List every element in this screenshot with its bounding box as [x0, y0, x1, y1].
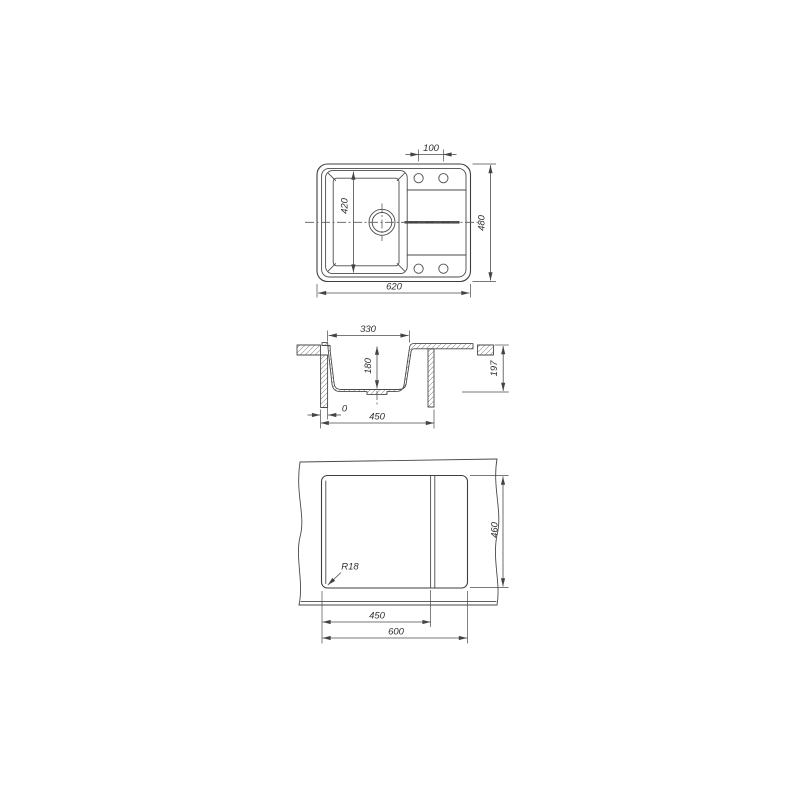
dim-label-corner-radius: R18 [341, 562, 359, 573]
dim-overall-width: 620 [317, 281, 471, 297]
dim-label-zero-offset: 0 [342, 404, 348, 415]
sink-technical-drawing: 100 420 480 620 330 [0, 0, 800, 800]
dim-label-bowl-depth: 180 [363, 357, 374, 374]
bowl-chamfer-bl [328, 264, 335, 271]
dim-label-inner-width: 450 [369, 610, 386, 621]
cabinet-wall-right [428, 349, 434, 407]
dim-bowl-top-width: 330 [328, 324, 410, 343]
bowl-chamfer-br [397, 264, 404, 271]
dim-zero-offset: 0 [308, 404, 348, 420]
break-line-left [298, 462, 301, 605]
dim-label-total-height: 197 [489, 360, 500, 377]
dim-cutout-width: 600 [323, 591, 468, 644]
dim-corner-radius: R18 [328, 562, 360, 586]
dim-overall-depth: 480 [473, 164, 497, 282]
dim-base-width: 450 [321, 410, 434, 429]
dim-bowl-depth: 180 [363, 347, 377, 389]
dim-label-hole-spacing: 100 [423, 143, 440, 154]
dim-label-overall-depth: 480 [477, 214, 488, 231]
tap-hole [439, 264, 448, 273]
technical-drawing-canvas: 100 420 480 620 330 [0, 0, 800, 800]
sink-profile [322, 343, 473, 395]
tap-hole [414, 174, 423, 183]
dim-tap-hole-spacing: 100 [406, 143, 457, 162]
countertop-section-right [478, 345, 494, 355]
dim-label-cutout-depth: 460 [490, 521, 501, 538]
dim-label-overall-width: 620 [386, 281, 403, 292]
dim-label-cutout-width: 600 [388, 626, 405, 637]
section-view: 330 180 197 0 450 [297, 324, 509, 429]
countertop-section-left [297, 345, 321, 355]
leader-line [328, 573, 341, 586]
dim-label-bowl-top-width: 330 [360, 324, 377, 335]
dim-label-bowl-length: 420 [339, 197, 350, 214]
dim-cutout-depth: 460 [470, 476, 509, 588]
tap-hole [439, 174, 448, 183]
countertop-top-edge [300, 459, 497, 462]
cutout-view: R18 450 600 460 [298, 459, 508, 644]
cabinet-wall-left [321, 355, 328, 408]
countertop-outline [298, 459, 498, 605]
top-view: 100 420 480 620 [305, 143, 496, 298]
dim-label-base-width: 450 [369, 411, 386, 422]
dim-cutout-inner-width: 450 [322, 590, 431, 644]
bowl-chamfer-tl [328, 173, 335, 180]
bowl-chamfer-tr [397, 173, 404, 180]
tap-hole [414, 264, 423, 273]
drainer-area [405, 174, 466, 274]
